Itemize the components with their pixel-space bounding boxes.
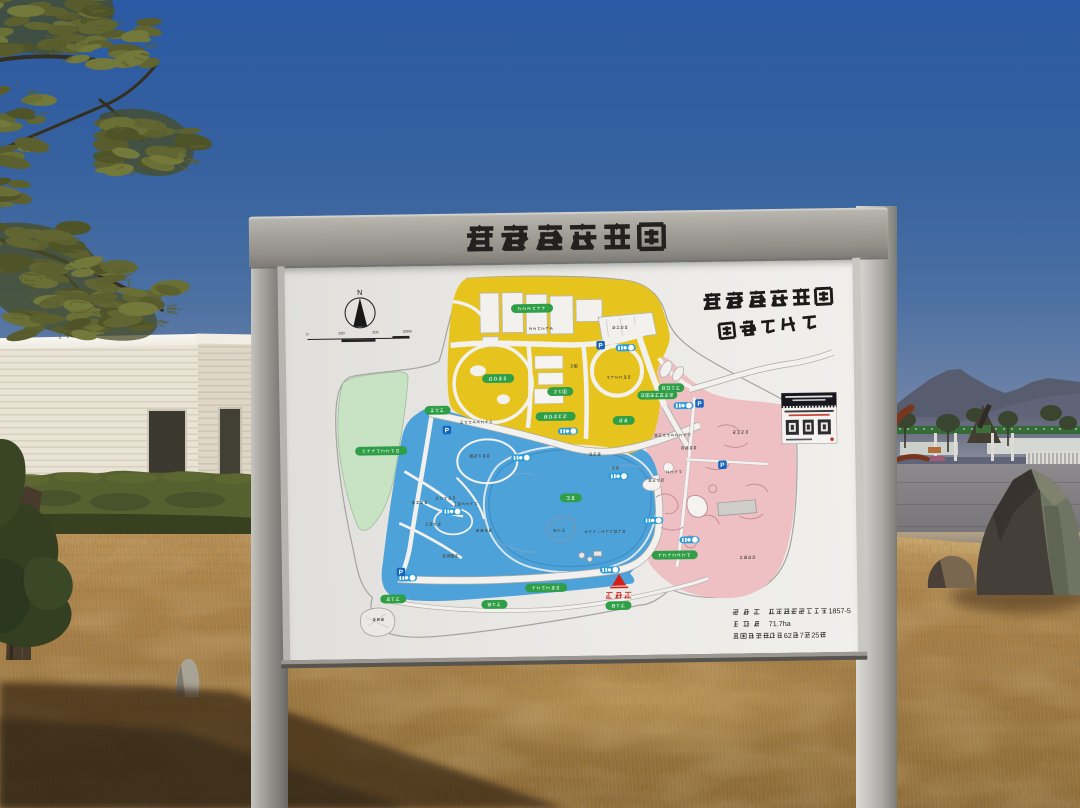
- svg-text:25: 25: [811, 631, 819, 639]
- svg-text:71.7ha: 71.7ha: [769, 620, 791, 628]
- svg-text:200: 200: [372, 331, 378, 335]
- svg-text:N: N: [357, 288, 363, 297]
- svg-text:P: P: [697, 401, 702, 408]
- svg-text:62: 62: [784, 632, 792, 640]
- svg-text:P: P: [598, 342, 603, 349]
- svg-text:P: P: [445, 427, 450, 434]
- svg-text:100: 100: [338, 332, 344, 336]
- svg-text:P: P: [399, 569, 404, 576]
- svg-text:1857-5: 1857-5: [828, 607, 851, 615]
- svg-text:P: P: [720, 462, 725, 469]
- svg-text:0: 0: [306, 333, 308, 337]
- svg-text:7: 7: [800, 632, 804, 640]
- svg-text:300m: 300m: [403, 330, 413, 334]
